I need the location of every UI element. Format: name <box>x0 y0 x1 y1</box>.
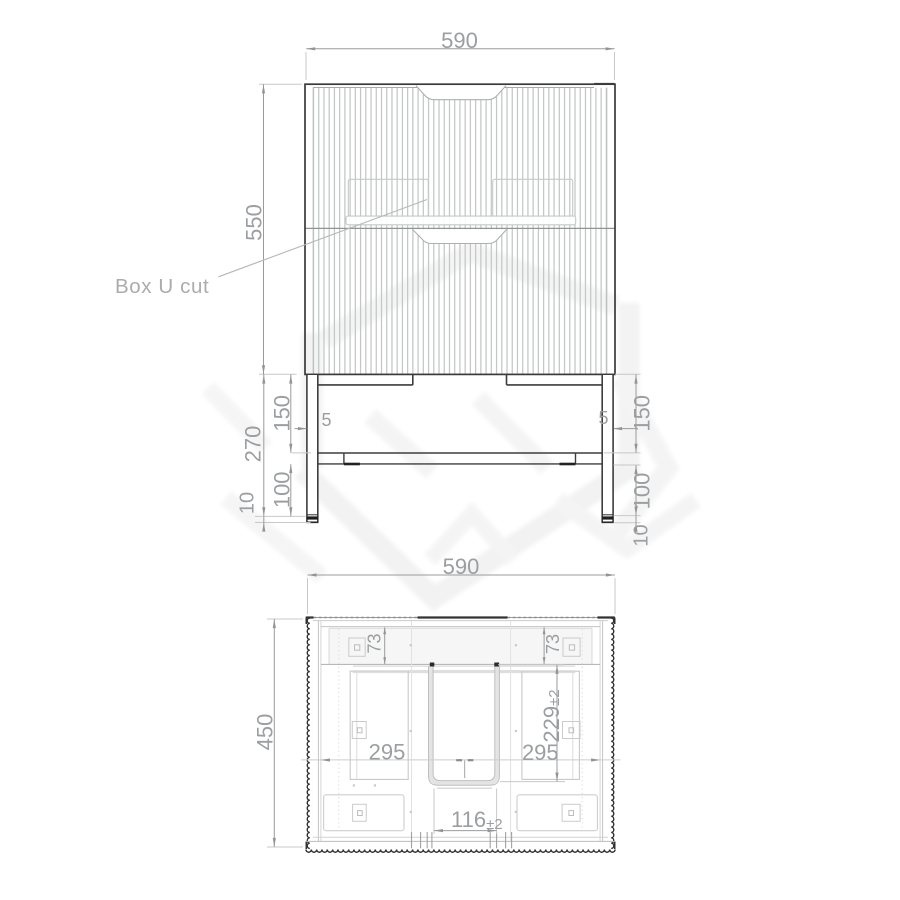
svg-text:10: 10 <box>631 524 653 546</box>
svg-text:150: 150 <box>270 395 295 432</box>
svg-text:270: 270 <box>241 426 266 463</box>
svg-text:590: 590 <box>441 28 478 53</box>
svg-text:100: 100 <box>630 473 655 510</box>
svg-text:550: 550 <box>242 204 267 241</box>
svg-text:73: 73 <box>365 633 385 653</box>
svg-text:10: 10 <box>237 492 259 514</box>
svg-text:Box U cut: Box U cut <box>115 275 209 298</box>
svg-text:5: 5 <box>321 410 331 430</box>
svg-text:295: 295 <box>522 740 559 765</box>
svg-text:295: 295 <box>369 739 406 764</box>
svg-text:590: 590 <box>443 554 480 579</box>
svg-text:150: 150 <box>630 395 655 432</box>
svg-text:100: 100 <box>270 471 295 508</box>
svg-text:450: 450 <box>252 714 277 751</box>
svg-text:73: 73 <box>543 634 563 654</box>
svg-text:5: 5 <box>598 408 608 428</box>
